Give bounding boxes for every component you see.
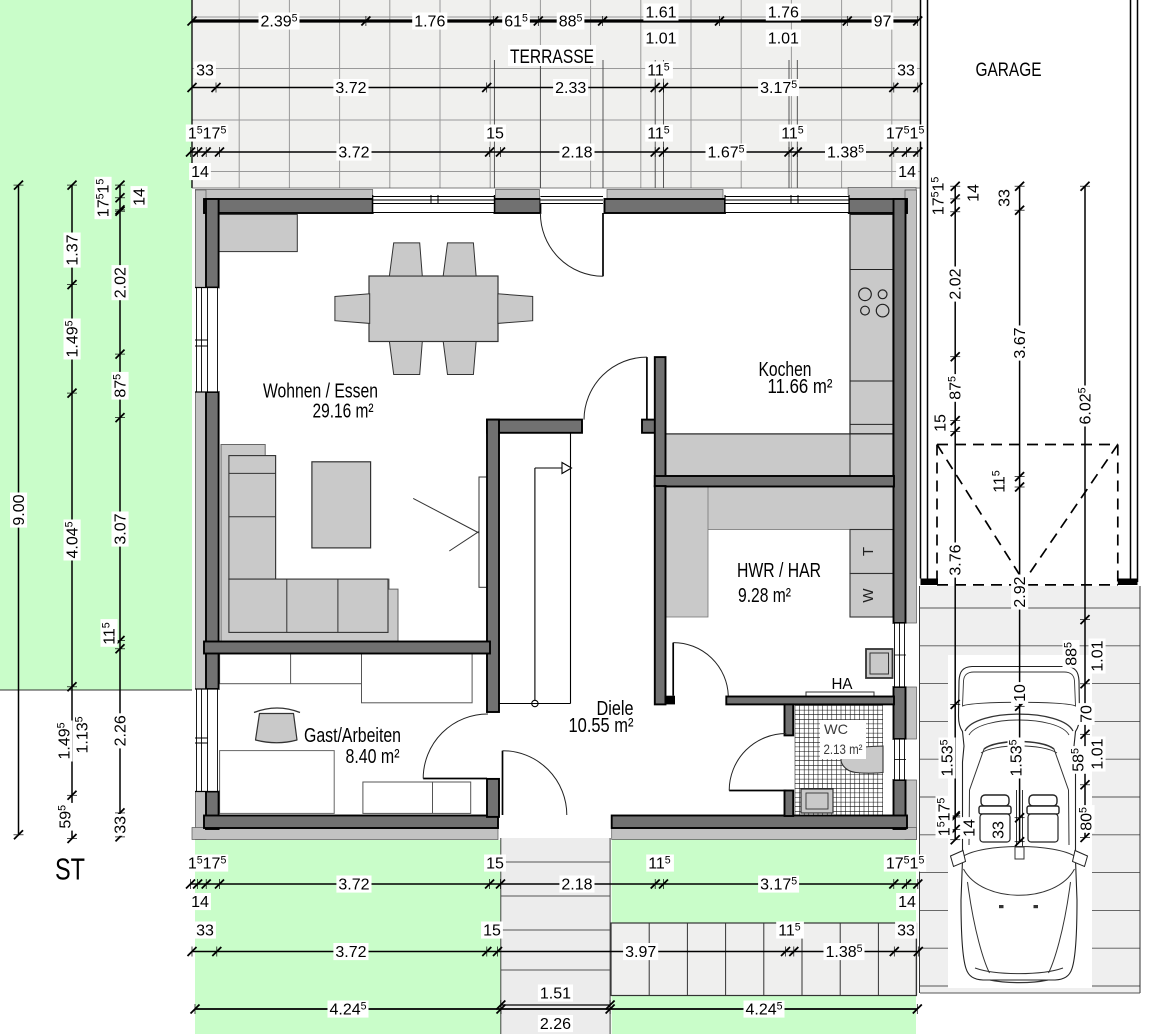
svg-text:Gast/Arbeiten: Gast/Arbeiten — [304, 725, 401, 747]
svg-text:14: 14 — [131, 188, 148, 206]
svg-text:2.26: 2.26 — [112, 715, 129, 746]
svg-text:HWR / HAR: HWR / HAR — [737, 560, 821, 582]
svg-text:2.13 m²: 2.13 m² — [824, 741, 863, 757]
svg-text:2.02: 2.02 — [948, 268, 965, 299]
svg-text:33: 33 — [196, 922, 214, 939]
svg-text:2.18: 2.18 — [561, 144, 592, 161]
svg-text:3.67: 3.67 — [1012, 327, 1029, 358]
svg-text:9.00: 9.00 — [11, 494, 28, 525]
svg-text:3.72: 3.72 — [335, 80, 366, 97]
svg-text:1.01: 1.01 — [1089, 738, 1106, 769]
svg-text:14: 14 — [961, 819, 978, 837]
svg-text:10: 10 — [1012, 684, 1029, 702]
svg-text:T: T — [860, 547, 877, 556]
svg-text:2.92: 2.92 — [1012, 576, 1029, 607]
svg-text:HA: HA — [832, 676, 853, 693]
svg-text:1.61: 1.61 — [645, 4, 676, 21]
svg-text:9.28 m²: 9.28 m² — [738, 585, 791, 607]
svg-text:1.76: 1.76 — [414, 13, 445, 30]
svg-text:GARAGE: GARAGE — [976, 59, 1042, 81]
svg-text:14: 14 — [898, 164, 916, 181]
svg-text:29.16 m²: 29.16 m² — [313, 401, 374, 423]
svg-text:33: 33 — [897, 922, 915, 939]
svg-text:33: 33 — [112, 816, 129, 834]
svg-text:1.37: 1.37 — [64, 234, 81, 265]
svg-text:15: 15 — [483, 922, 501, 939]
svg-text:3.97: 3.97 — [625, 944, 656, 961]
svg-text:3.07: 3.07 — [112, 513, 129, 544]
svg-text:2.18: 2.18 — [561, 876, 592, 893]
svg-text:3.72: 3.72 — [338, 876, 369, 893]
svg-text:15: 15 — [932, 414, 949, 432]
svg-text:33: 33 — [897, 62, 915, 79]
svg-text:3.76: 3.76 — [948, 544, 965, 575]
svg-text:33: 33 — [990, 821, 1007, 839]
svg-text:14: 14 — [191, 164, 209, 181]
svg-text:WC: WC — [824, 721, 848, 737]
svg-text:1.51: 1.51 — [540, 985, 571, 1002]
svg-text:97: 97 — [874, 13, 892, 30]
svg-text:1.76: 1.76 — [768, 4, 799, 21]
svg-text:14: 14 — [898, 894, 916, 911]
svg-text:W: W — [860, 588, 877, 603]
svg-text:10.55 m²: 10.55 m² — [569, 715, 634, 737]
svg-text:Wohnen / Essen: Wohnen / Essen — [263, 381, 378, 403]
svg-text:11.66 m²: 11.66 m² — [768, 376, 833, 398]
svg-text:33: 33 — [996, 189, 1013, 207]
svg-text:TERRASSE: TERRASSE — [510, 46, 594, 68]
svg-text:1.01: 1.01 — [1089, 640, 1106, 671]
svg-text:2.33: 2.33 — [555, 80, 586, 97]
svg-text:14: 14 — [965, 184, 982, 202]
svg-text:8.40 m²: 8.40 m² — [346, 746, 400, 768]
svg-text:15: 15 — [486, 855, 504, 872]
svg-text:2.02: 2.02 — [112, 267, 129, 298]
svg-text:14: 14 — [191, 894, 209, 911]
svg-text:3.72: 3.72 — [335, 944, 366, 961]
svg-text:70: 70 — [1078, 705, 1095, 723]
svg-text:15: 15 — [486, 125, 504, 142]
svg-text:2.26: 2.26 — [540, 1016, 571, 1033]
svg-text:ST: ST — [55, 852, 85, 887]
svg-text:1.01: 1.01 — [768, 30, 799, 47]
svg-text:33: 33 — [196, 62, 214, 79]
svg-text:1.01: 1.01 — [645, 30, 676, 47]
svg-text:3.72: 3.72 — [338, 144, 369, 161]
